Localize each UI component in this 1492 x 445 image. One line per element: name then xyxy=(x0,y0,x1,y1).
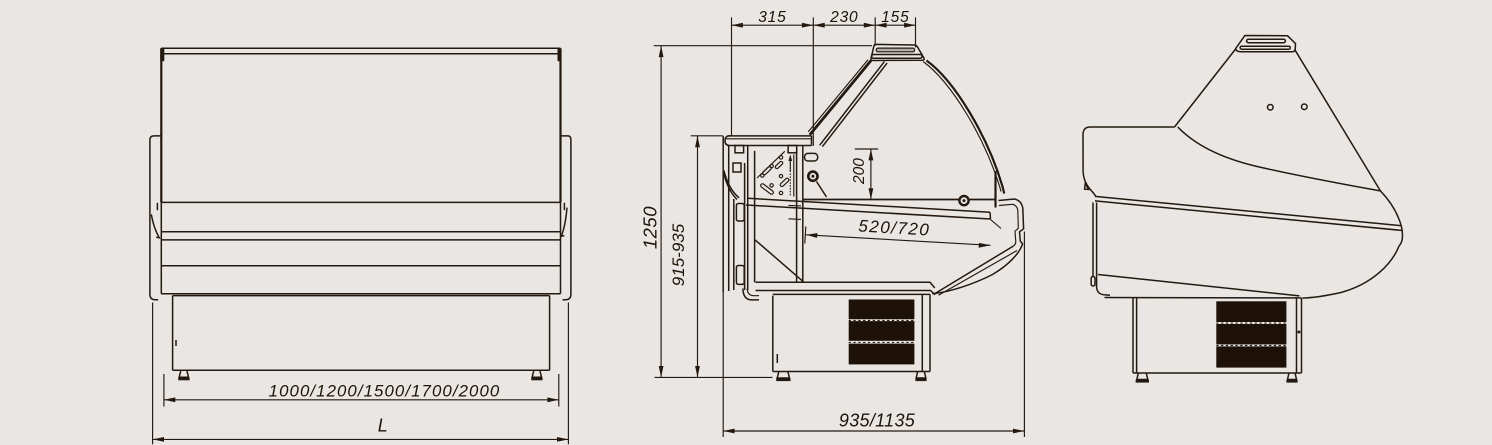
svg-text:1250: 1250 xyxy=(640,206,661,249)
svg-text:1000/1200/1500/1700/2000: 1000/1200/1500/1700/2000 xyxy=(269,382,501,401)
svg-text:155: 155 xyxy=(881,9,909,26)
svg-text:915-935: 915-935 xyxy=(669,223,688,286)
svg-text:315: 315 xyxy=(758,9,786,26)
svg-text:230: 230 xyxy=(829,9,858,26)
svg-text:200: 200 xyxy=(851,158,868,185)
svg-text:L: L xyxy=(378,416,388,436)
svg-text:935/1135: 935/1135 xyxy=(839,411,916,431)
